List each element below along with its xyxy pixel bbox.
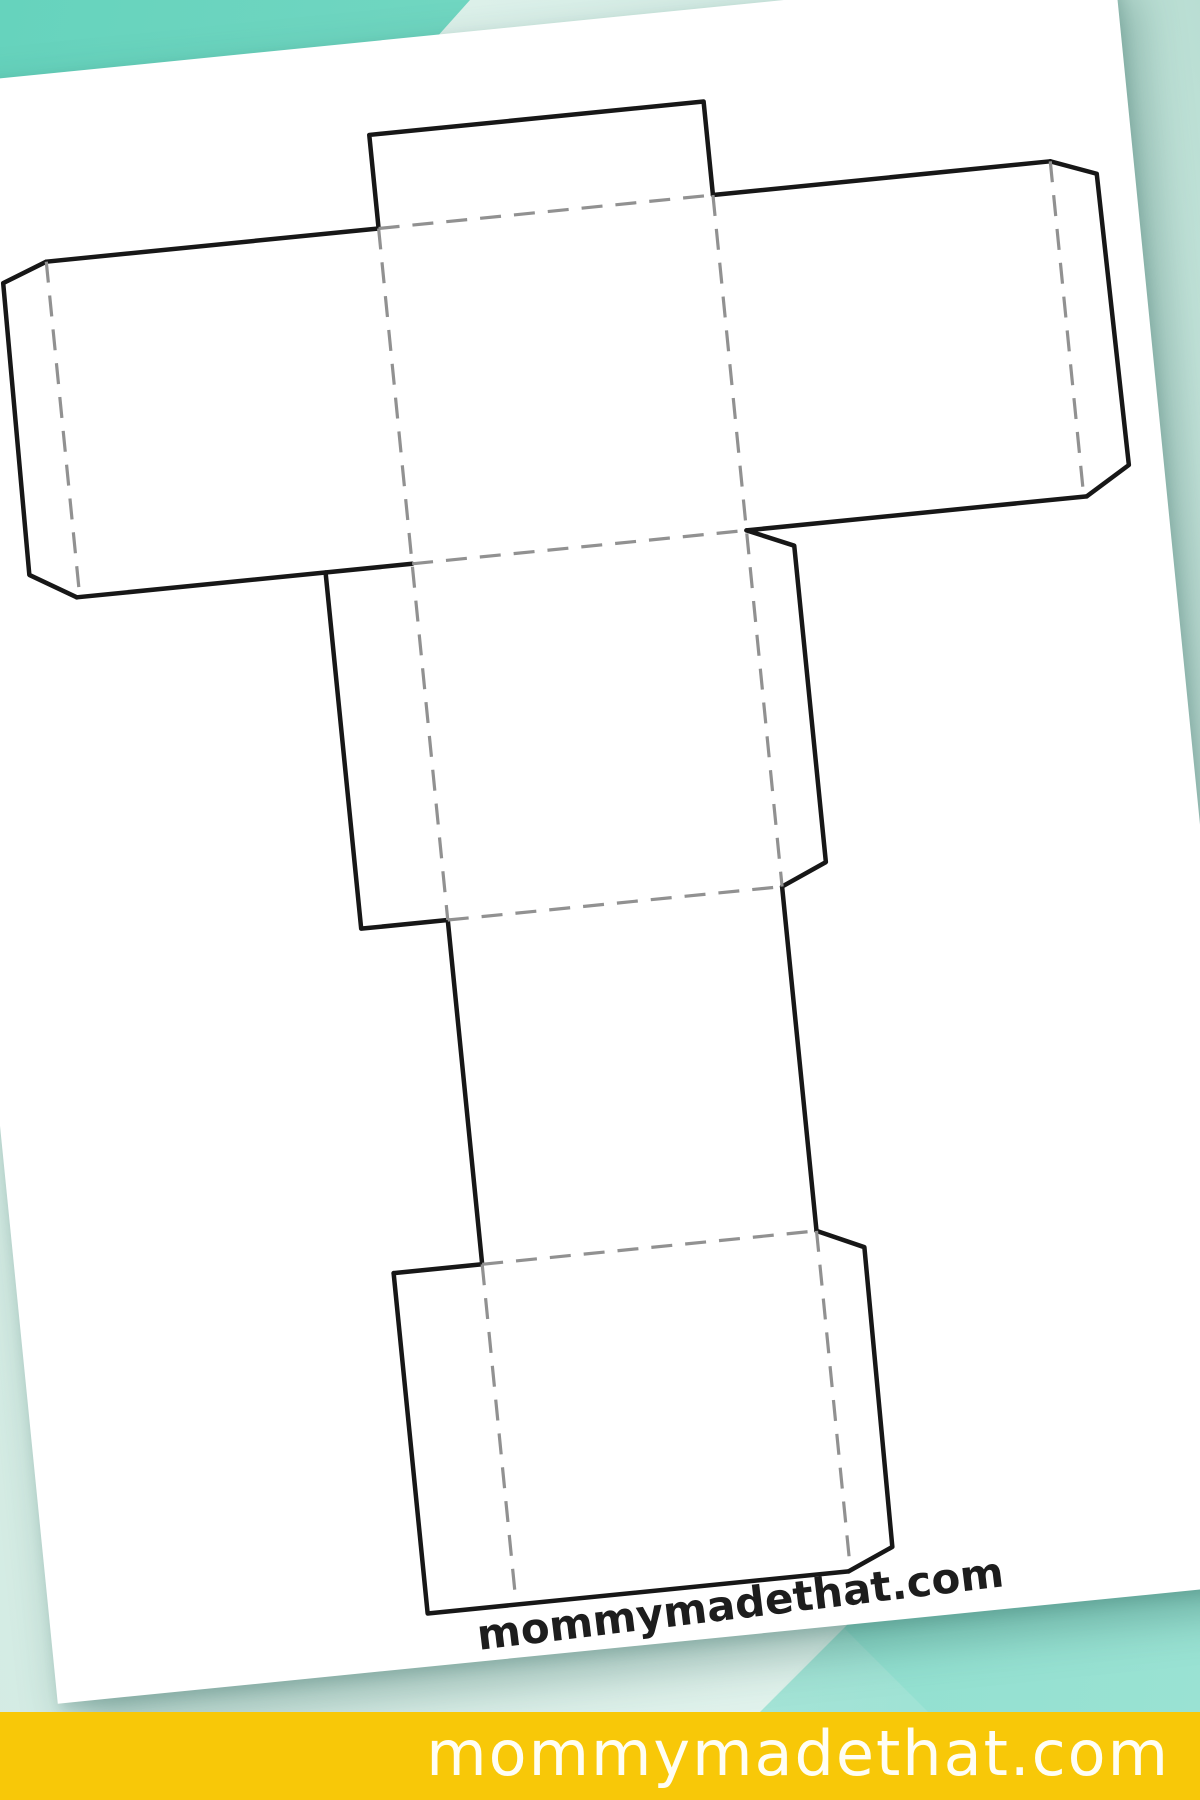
left-tab-fold xyxy=(46,262,79,591)
crossbar-bottom-left-edge xyxy=(77,564,412,598)
page-background: mommymadethat.com mommymadethat.com xyxy=(0,0,1200,1800)
stem-bottom-fold xyxy=(482,1231,816,1264)
bottom-box-right-tab xyxy=(815,1226,897,1571)
letter-t-template-drawing xyxy=(0,0,1200,1724)
column-left-fold xyxy=(379,228,448,920)
crossbar-top-left-edge xyxy=(46,228,378,261)
footer-bar: mommymadethat.com xyxy=(0,1712,1200,1800)
cut-lines xyxy=(0,63,1200,1643)
middle-bottom-fold xyxy=(448,887,782,920)
crossbar-right-tab xyxy=(1050,157,1131,497)
stem-right-edge xyxy=(782,887,816,1231)
bottom-box-left-and-bottom xyxy=(394,1231,849,1613)
bottom-box-right-fold xyxy=(817,1231,850,1561)
bottom-box-left-fold xyxy=(482,1264,515,1594)
fold-lines xyxy=(46,161,1187,1628)
stem-left-edge xyxy=(448,920,482,1264)
footer-site-text: mommymadethat.com xyxy=(426,1706,1170,1794)
bottom-box-top-left-edge xyxy=(394,1264,483,1273)
middle-right-tab xyxy=(746,526,827,887)
top-tab-fold xyxy=(379,195,713,228)
crossbar-bottom-right-edge xyxy=(746,496,1086,530)
crossbar-top-right-edge xyxy=(713,161,1050,195)
right-tab-fold xyxy=(1050,161,1083,490)
top-tab-outline xyxy=(369,102,713,229)
crossbar-left-tab xyxy=(0,262,80,602)
crossbar-bottom-fold xyxy=(412,530,746,563)
